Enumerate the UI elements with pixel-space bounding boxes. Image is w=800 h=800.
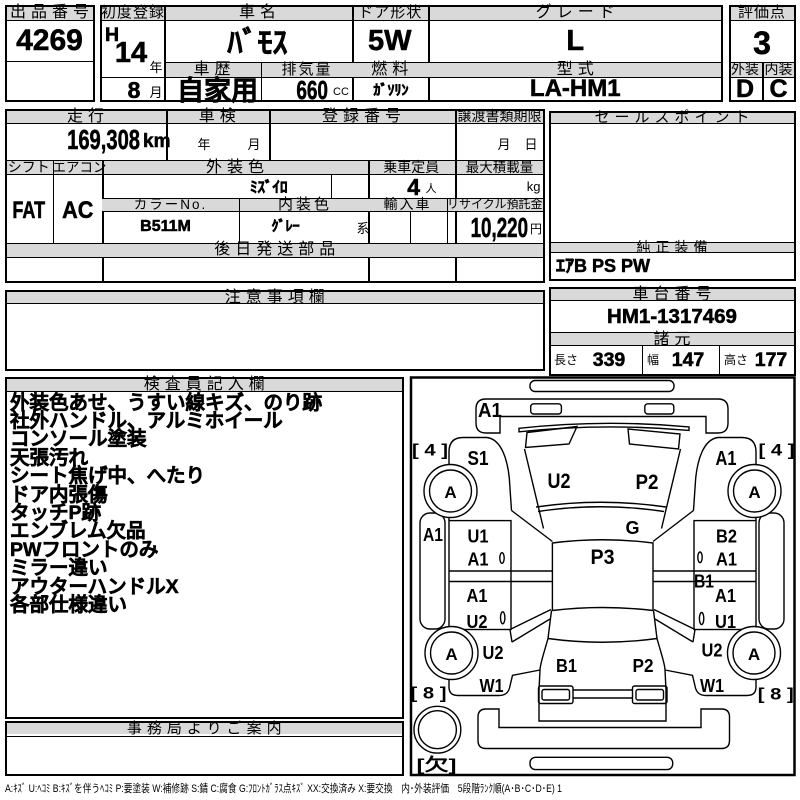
svg-text:[ 4 ]: [ 4 ] <box>412 441 448 460</box>
svg-text:A1: A1 <box>478 400 502 422</box>
svg-text:W1: W1 <box>480 676 504 696</box>
svg-text:A1: A1 <box>468 550 489 570</box>
svg-text:U1: U1 <box>715 612 736 632</box>
svg-text:W1: W1 <box>700 676 724 696</box>
svg-text:U2: U2 <box>702 641 723 661</box>
svg-text:U2: U2 <box>467 612 488 632</box>
svg-text:B1: B1 <box>694 572 714 592</box>
svg-text:P2: P2 <box>633 656 654 676</box>
svg-text:A: A <box>748 483 760 502</box>
svg-text:[欠]: [欠] <box>417 755 457 775</box>
svg-text:A: A <box>445 645 457 664</box>
svg-text:G: G <box>625 518 639 538</box>
svg-text:B1: B1 <box>556 656 577 676</box>
svg-text:P2: P2 <box>636 471 659 494</box>
svg-text:A1: A1 <box>716 448 737 470</box>
svg-text:U1: U1 <box>468 527 489 547</box>
svg-text:A: A <box>444 483 456 502</box>
svg-text:A1: A1 <box>715 586 736 606</box>
svg-text:A1: A1 <box>467 586 488 606</box>
svg-text:U2: U2 <box>548 470 571 493</box>
svg-text:A: A <box>748 645 760 664</box>
svg-text:[ 8 ]: [ 8 ] <box>758 685 794 704</box>
svg-text:U2: U2 <box>483 643 504 663</box>
svg-text:A1: A1 <box>716 550 737 570</box>
svg-text:P3: P3 <box>591 546 615 569</box>
svg-text:[ 8 ]: [ 8 ] <box>411 684 447 703</box>
svg-text:A1: A1 <box>423 525 443 545</box>
svg-text:B2: B2 <box>716 527 737 547</box>
svg-text:[ 4 ]: [ 4 ] <box>759 441 795 460</box>
svg-text:S1: S1 <box>468 448 489 470</box>
